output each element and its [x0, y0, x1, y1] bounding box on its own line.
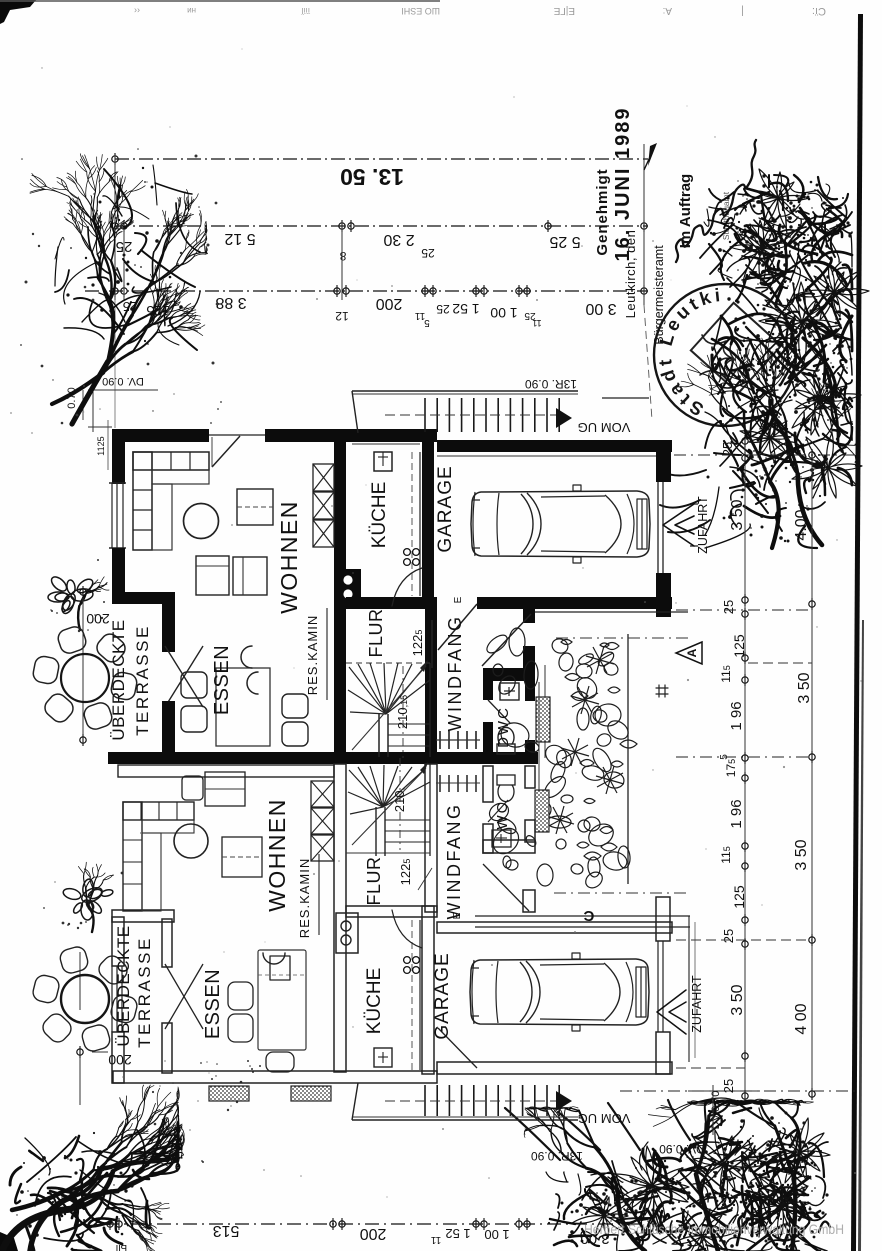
- svg-text:Herbert Schlüsche Immobilienve: Herbert Schlüsche Immobilienverwaltung G…: [584, 1221, 844, 1237]
- svg-text:3 50: 3 50: [729, 984, 746, 1015]
- svg-text:4.00: 4.00: [793, 509, 810, 540]
- svg-text:Leutkirch, den: Leutkirch, den: [623, 230, 638, 319]
- svg-text:25: 25: [421, 246, 435, 260]
- svg-text:FLUR: FLUR: [364, 856, 384, 905]
- svg-text:VOM UG: VOM UG: [578, 420, 631, 435]
- svg-text:200: 200: [360, 1225, 387, 1242]
- svg-text:200: 200: [86, 611, 110, 627]
- svg-text:1 00: 1 00: [490, 305, 517, 321]
- svg-text:ШО ЕЅНІ: ШО ЕЅНІ: [401, 6, 440, 16]
- svg-text:1125: 1125: [96, 436, 106, 455]
- svg-text:DV.0.70: DV.0.70: [710, 1091, 722, 1130]
- svg-text:TERRASSE: TERRASSE: [133, 624, 152, 736]
- svg-text:A: A: [685, 648, 699, 657]
- svg-text:5 25: 5 25: [549, 233, 580, 250]
- svg-text:WINDFANG: WINDFANG: [445, 615, 465, 732]
- svg-text:KÜCHE: KÜCHE: [364, 968, 385, 1035]
- svg-text:GARAGE: GARAGE: [432, 952, 453, 1039]
- svg-text:Е|ГЕ: Е|ГЕ: [553, 5, 575, 16]
- svg-text:А:: А:: [663, 5, 672, 16]
- svg-text:1 52: 1 52: [452, 301, 479, 317]
- svg-text:TERRASSE: TERRASSE: [135, 936, 154, 1048]
- svg-text:8: 8: [339, 249, 346, 263]
- svg-text:12: 12: [335, 309, 349, 323]
- svg-text:ZUFAHRT: ZUFAHRT: [696, 496, 710, 554]
- svg-text:13. 50: 13. 50: [340, 164, 404, 190]
- svg-text:3 00: 3 00: [585, 300, 616, 317]
- svg-text:1 00: 1 00: [484, 1227, 509, 1242]
- svg-text:11: 11: [414, 310, 425, 321]
- svg-text:11: 11: [532, 318, 541, 328]
- svg-text:25: 25: [720, 442, 735, 456]
- svg-text:115: 115: [719, 846, 733, 863]
- svg-text:E: E: [452, 912, 463, 919]
- svg-text:ESSEN: ESSEN: [211, 645, 233, 715]
- svg-text:3 50: 3 50: [793, 839, 810, 870]
- svg-text:5 12: 5 12: [224, 230, 255, 247]
- svg-text:RES.KAMIN: RES.KAMIN: [297, 858, 312, 939]
- svg-text:|: |: [741, 5, 744, 17]
- svg-text:KÜCHE: KÜCHE: [369, 482, 390, 549]
- svg-text:13R. 0.90: 13R. 0.90: [531, 1149, 583, 1163]
- svg-text:1 96: 1 96: [728, 701, 745, 730]
- svg-text:ESSEN: ESSEN: [202, 969, 224, 1039]
- svg-text:Genehmigt: Genehmigt: [594, 168, 611, 255]
- svg-text:200: 200: [376, 295, 403, 312]
- svg-text:4 00: 4 00: [793, 1003, 810, 1034]
- svg-text:DV. 0.90: DV. 0.90: [659, 1142, 705, 1156]
- svg-text:2 30: 2 30: [383, 231, 414, 248]
- svg-text:1 52: 1 52: [445, 1226, 470, 1241]
- svg-text:ZUFAHRT: ZUFAHRT: [690, 975, 704, 1033]
- svg-text:3 88: 3 88: [215, 294, 246, 311]
- svg-text:RES.KAMIN: RES.KAMIN: [305, 615, 320, 696]
- svg-text:WINDFANG: WINDFANG: [444, 803, 464, 920]
- svg-text:Сї:: Сї:: [812, 5, 826, 17]
- svg-text:25: 25: [721, 929, 736, 943]
- svg-text:WC: WC: [494, 801, 511, 830]
- svg-text:513: 513: [213, 1222, 240, 1239]
- svg-text:‹‹: ‹‹: [134, 6, 140, 16]
- svg-text:ЫГ: ЫГ: [112, 1242, 127, 1251]
- svg-text:ÜBERDECKTE: ÜBERDECKTE: [109, 619, 128, 740]
- svg-text:FLUR: FLUR: [366, 608, 386, 657]
- svg-text:115: 115: [719, 665, 733, 682]
- svg-text:WOHNEN: WOHNEN: [276, 500, 302, 614]
- svg-text:WOHNEN: WOHNEN: [264, 798, 290, 912]
- svg-text:3 50: 3 50: [796, 672, 813, 703]
- svg-text:1 96: 1 96: [728, 799, 745, 828]
- svg-text:11: 11: [430, 1234, 441, 1245]
- svg-text:25: 25: [436, 302, 450, 316]
- svg-text:125: 125: [731, 885, 747, 909]
- svg-text:13R. 0.90: 13R. 0.90: [525, 377, 577, 391]
- svg-text:125: 125: [731, 634, 747, 658]
- svg-text:ни: ни: [187, 6, 196, 15]
- svg-text:25: 25: [721, 600, 736, 614]
- svg-text:5: 5: [424, 317, 430, 328]
- svg-text:їїіЇ: їїіЇ: [301, 6, 311, 15]
- svg-text:E: E: [453, 596, 464, 603]
- svg-text:GARAGE: GARAGE: [435, 465, 456, 552]
- svg-text:210,: 210,: [392, 788, 407, 812]
- svg-text:200: 200: [108, 1052, 132, 1068]
- svg-text:3 50: 3 50: [729, 499, 746, 530]
- svg-text:DV. 0.90: DV. 0.90: [102, 375, 144, 387]
- svg-text:175: 175: [724, 759, 738, 777]
- svg-text:ÜBERDECKTE: ÜBERDECKTE: [114, 925, 133, 1046]
- svg-text:VOM UG: VOM UG: [578, 1111, 631, 1126]
